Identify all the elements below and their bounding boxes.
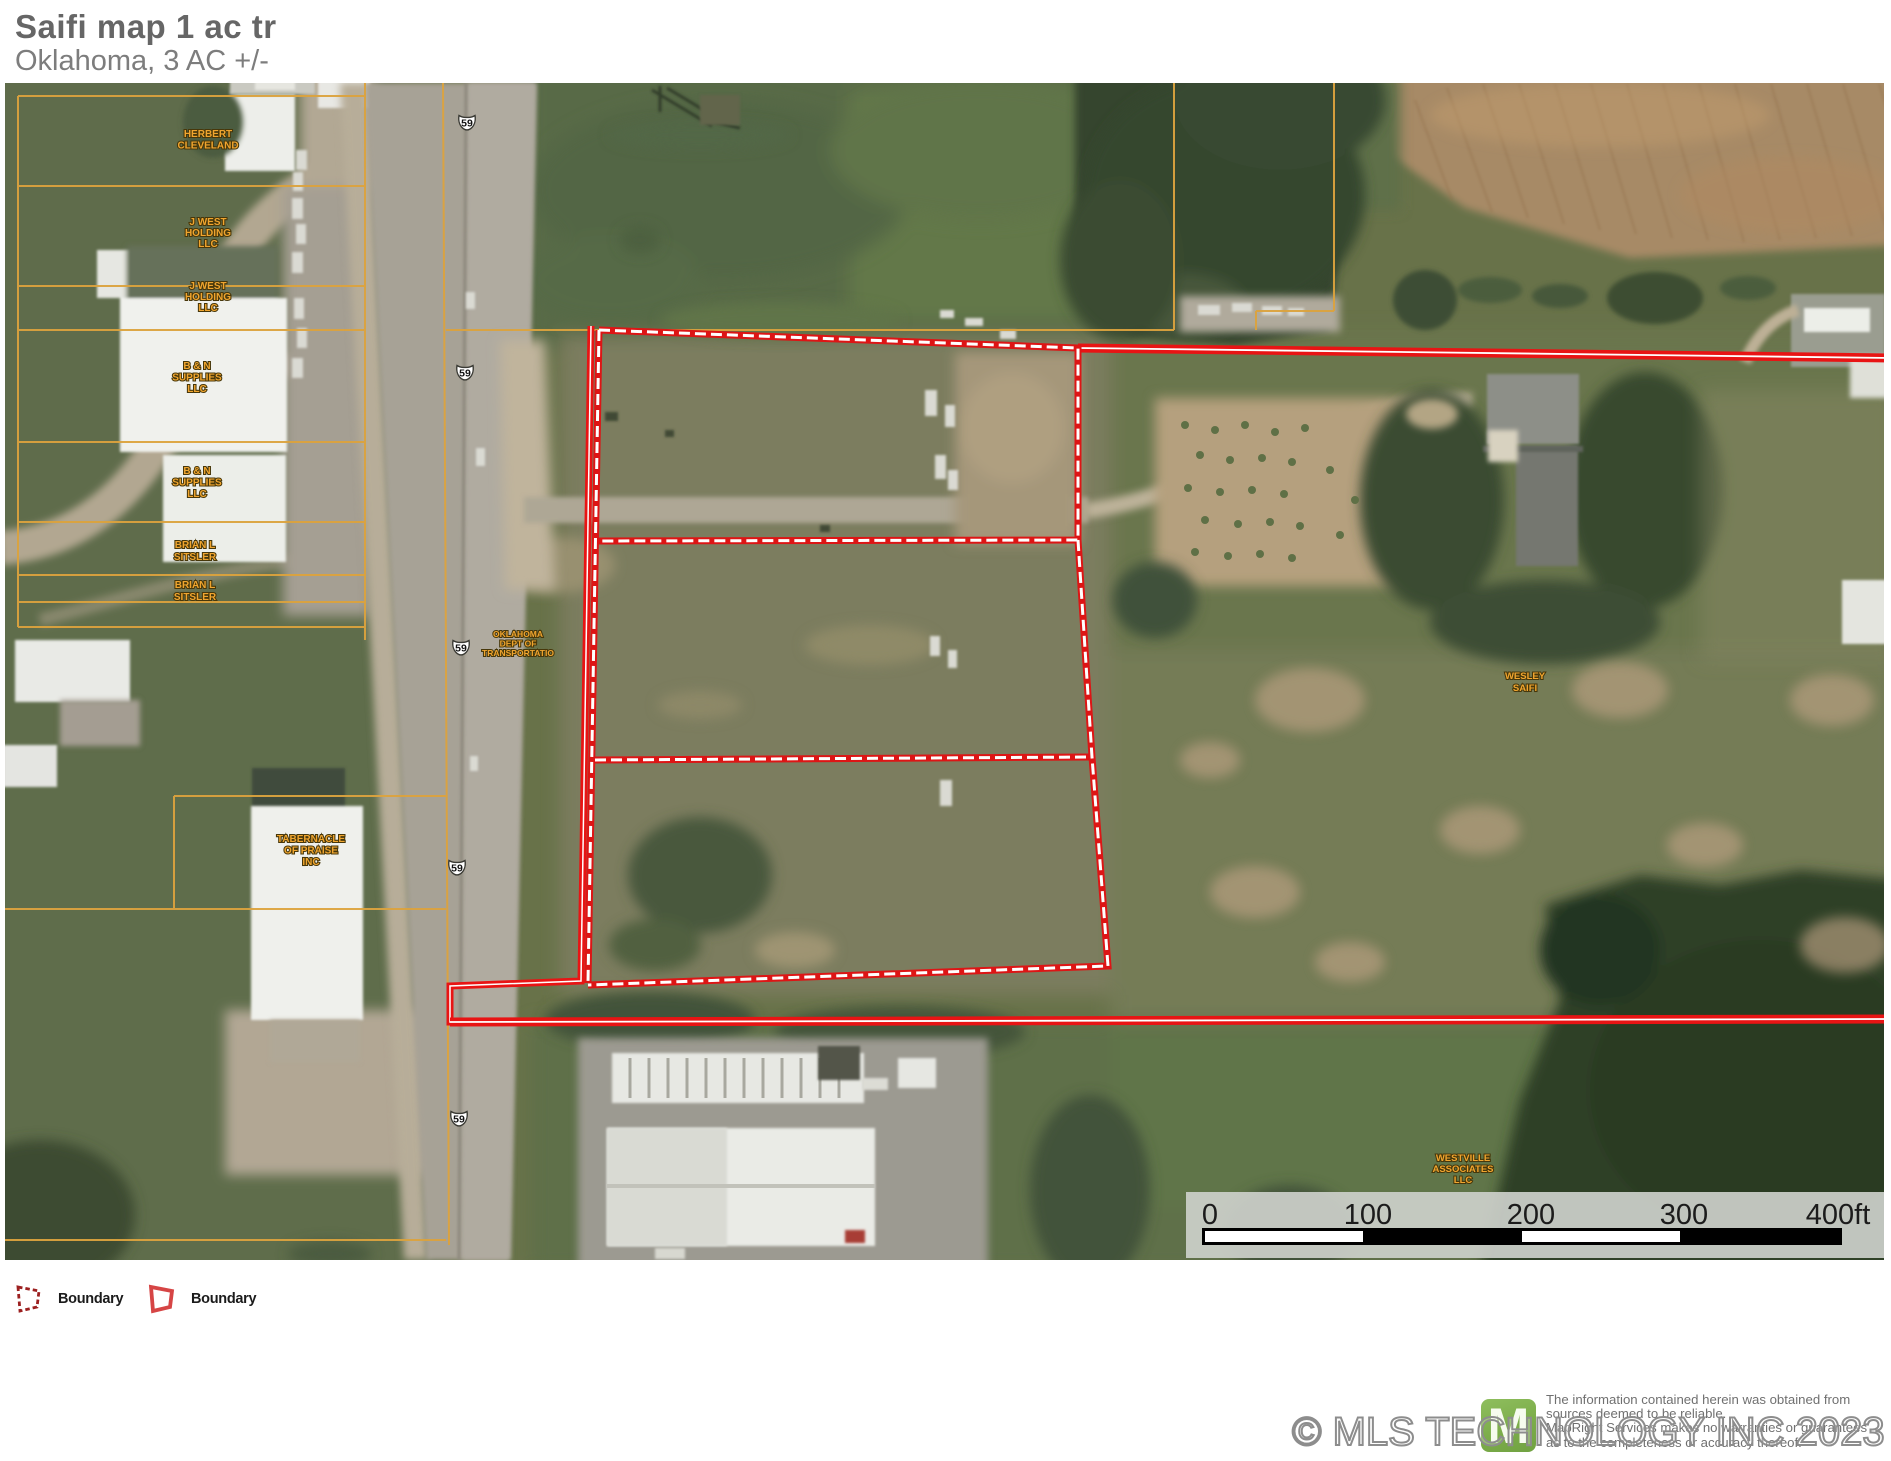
svg-text:59: 59 (451, 863, 463, 875)
svg-text:B & N: B & N (183, 466, 210, 477)
svg-text:LLC: LLC (1454, 1175, 1473, 1186)
svg-text:J WEST: J WEST (189, 217, 226, 228)
svg-text:59: 59 (453, 1114, 465, 1126)
svg-text:ASSOCIATES: ASSOCIATES (1432, 1164, 1493, 1175)
svg-text:SITSLER: SITSLER (174, 592, 217, 603)
svg-text:OKLAHOMA: OKLAHOMA (493, 629, 543, 639)
svg-text:0: 0 (1202, 1199, 1218, 1231)
svg-text:59: 59 (459, 368, 471, 380)
svg-text:BRIAN L: BRIAN L (175, 580, 216, 591)
svg-text:HOLDING: HOLDING (185, 228, 231, 239)
svg-text:DEPT OF: DEPT OF (500, 639, 537, 649)
svg-text:59: 59 (461, 118, 473, 130)
svg-text:100: 100 (1344, 1199, 1392, 1231)
svg-text:B & N: B & N (183, 361, 210, 372)
svg-text:HERBERT: HERBERT (184, 129, 232, 140)
svg-text:LLC: LLC (198, 239, 217, 250)
svg-text:LLC: LLC (187, 489, 206, 500)
svg-text:SITSLER: SITSLER (174, 552, 217, 563)
svg-text:WESLEY: WESLEY (1505, 671, 1546, 682)
svg-text:TABERNACLE: TABERNACLE (277, 834, 345, 845)
svg-text:59: 59 (455, 643, 467, 655)
svg-text:HOLDING: HOLDING (185, 292, 231, 303)
svg-text:CLEVELAND: CLEVELAND (177, 141, 238, 152)
svg-text:SUPPLIES: SUPPLIES (172, 373, 222, 384)
svg-text:SAIFI: SAIFI (1513, 683, 1537, 694)
svg-text:BRIAN L: BRIAN L (175, 540, 216, 551)
svg-text:LLC: LLC (198, 303, 217, 314)
svg-text:OF PRAISE: OF PRAISE (284, 846, 338, 857)
svg-text:TRANSPORTATIO: TRANSPORTATIO (482, 648, 554, 658)
svg-text:400ft: 400ft (1806, 1199, 1871, 1231)
svg-text:LLC: LLC (187, 384, 206, 395)
svg-text:200: 200 (1507, 1199, 1555, 1231)
svg-text:INC: INC (302, 857, 319, 868)
svg-text:SUPPLIES: SUPPLIES (172, 478, 222, 489)
svg-text:WESTVILLE: WESTVILLE (1436, 1153, 1490, 1164)
svg-text:300: 300 (1660, 1199, 1708, 1231)
svg-text:J WEST: J WEST (189, 281, 226, 292)
